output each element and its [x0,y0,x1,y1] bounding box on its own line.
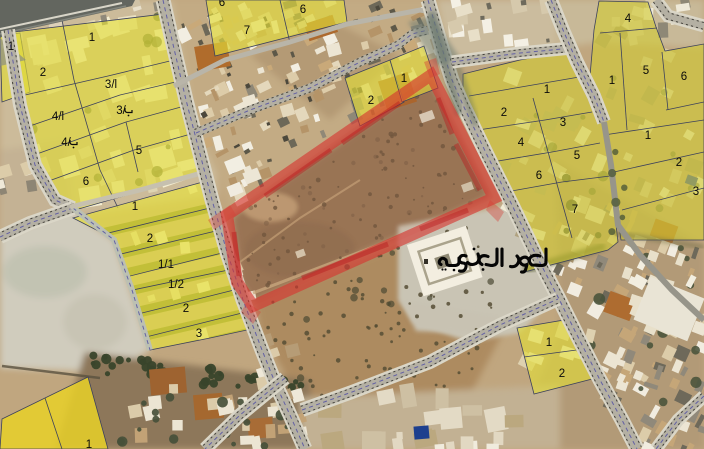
svg-text:1/1: 1/1 [158,259,174,271]
svg-text:4: 4 [518,137,525,149]
svg-text:3: 3 [693,186,699,198]
svg-text:2: 2 [559,368,565,380]
svg-text:5: 5 [136,145,142,157]
svg-text:2: 2 [147,233,153,245]
svg-text:3: 3 [196,328,202,340]
svg-text:1: 1 [8,41,14,53]
svg-text:1: 1 [89,32,95,44]
svg-text:3/l: 3/l [105,79,117,91]
svg-text:6: 6 [300,4,306,16]
svg-text:1: 1 [132,201,138,213]
svg-text:1: 1 [609,75,615,87]
svg-text:5: 5 [574,150,580,162]
svg-text:7: 7 [572,204,578,216]
svg-text:3: 3 [560,117,566,129]
svg-text:2: 2 [501,107,507,119]
svg-text:2: 2 [40,67,46,79]
svg-text:2: 2 [676,157,682,169]
svg-text:4/l: 4/l [52,111,64,123]
svg-text:4: 4 [625,13,632,25]
svg-text:1: 1 [645,130,651,142]
svg-text:2: 2 [368,95,374,107]
svg-text:2: 2 [183,303,189,315]
svg-text:6: 6 [681,71,687,83]
svg-text:6: 6 [219,0,225,9]
svg-text:1/2: 1/2 [168,279,184,291]
svg-text:5: 5 [643,65,649,77]
svg-text:1: 1 [401,73,407,85]
svg-text:1: 1 [544,84,550,96]
svg-text:1: 1 [546,337,552,349]
svg-text:7: 7 [244,25,250,37]
svg-text:1: 1 [86,439,92,449]
svg-text:6: 6 [83,176,89,188]
svg-text:6: 6 [536,170,542,182]
